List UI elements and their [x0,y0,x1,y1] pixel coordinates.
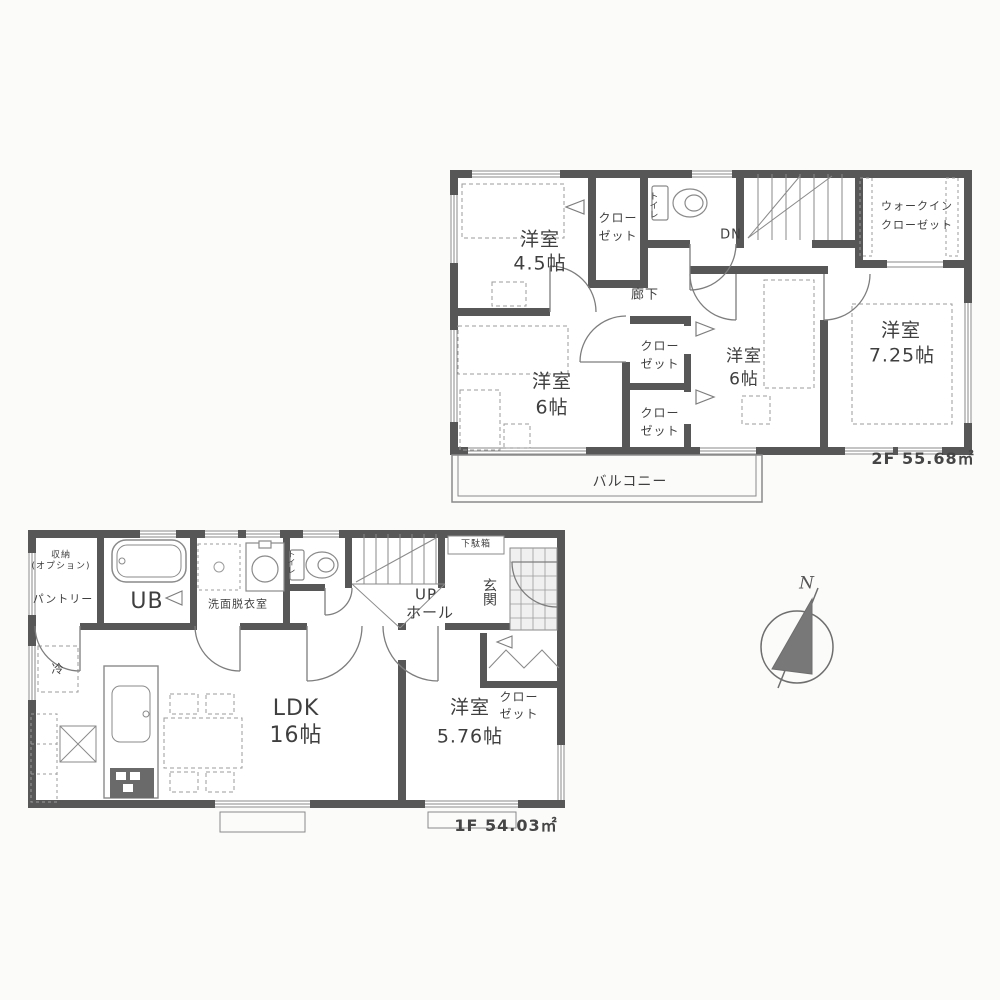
ldk-label-name: LDK [273,698,320,720]
floorplan-drawing [0,0,1000,1000]
floor1-area-label: 1F 54.03㎡ [454,818,557,834]
shoe-cabinet-label: 下駄箱 [461,541,491,550]
room-label-1f-576-size: 5.76帖 [437,728,503,747]
closet-label: ゼット [499,708,538,720]
ldk-label-size: 16帖 [270,725,323,747]
floorplan-page: 洋室 4.5帖 クロー ゼット トイレ DN ウォークイン クローゼット 廊下 … [0,0,1000,1000]
room-label-2f-6c-size: 6帖 [729,372,759,389]
porch-tiles [510,548,557,630]
room-label-2f-725-size: 7.25帖 [869,347,935,366]
fridge-label: 冷 [51,663,64,675]
closet-label: クロー [640,407,679,419]
storage-option-label: (オプション) [31,563,90,572]
room-label-2f-45-size: 4.5帖 [513,255,566,274]
closet-label: ゼット [640,425,679,437]
toilet-icon [290,550,338,580]
closet-label: クロー [598,212,637,224]
room-label-2f-6l-name: 洋室 [532,373,572,392]
floor2-area-label: 2F 55.68㎡ [871,451,974,467]
room-label-2f-6l-size: 6帖 [535,399,568,418]
stairs-up-label: UP [415,588,437,603]
room-label-2f-6c-name: 洋室 [726,349,762,366]
pantry-label: パントリー [33,594,94,605]
storage-option-label: 収納 [51,552,71,561]
wic-label: ウォークイン [881,201,953,212]
washroom-label: 洗面脱衣室 [208,599,268,610]
closet-label: ゼット [598,230,637,242]
balcony-label: バルコニー [593,475,668,489]
toilet-label-2f: トイレ [648,192,657,219]
stairs-up-label: ホール [406,606,454,621]
closet-label: クロー [640,340,679,352]
floor1-plan [28,530,565,832]
wic-label: クローゼット [881,220,953,231]
bath-label: UB [130,591,163,613]
compass-icon [761,588,833,688]
stairs-dn-label: DN [720,229,742,242]
hallway-label: 廊下 [631,289,659,302]
bathtub-icon [112,540,186,582]
toilet-label-1f: トイレ [287,550,295,574]
compass-north-label: N [799,576,815,593]
room-label-2f-45-name: 洋室 [520,231,560,250]
closet-label: ゼット [640,358,679,370]
room-label-1f-576-name: 洋室 [450,699,490,718]
closet-label: クロー [499,691,538,703]
room-label-2f-725-name: 洋室 [881,322,921,341]
sink-icon [246,541,284,591]
entrance-label: 玄関 [482,578,496,606]
kitchen-counter-icon [104,666,158,798]
